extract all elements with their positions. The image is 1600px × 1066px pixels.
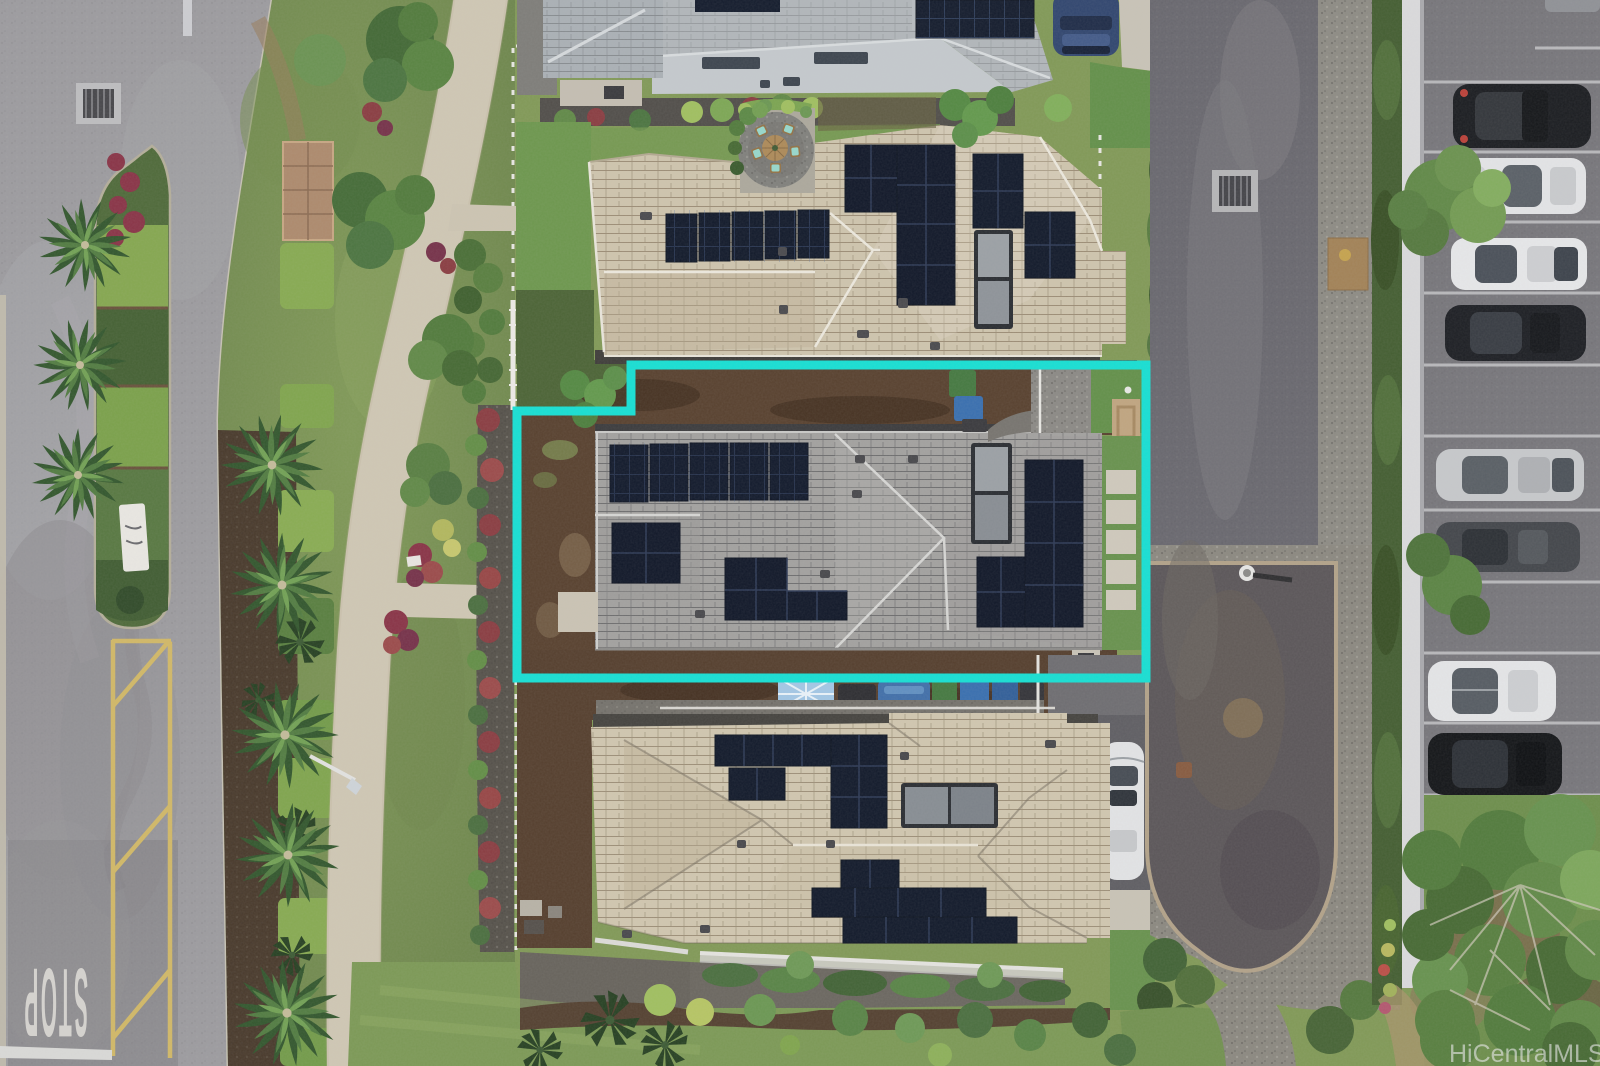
svg-text:HiCentralMLS: HiCentralMLS	[1449, 1040, 1600, 1066]
